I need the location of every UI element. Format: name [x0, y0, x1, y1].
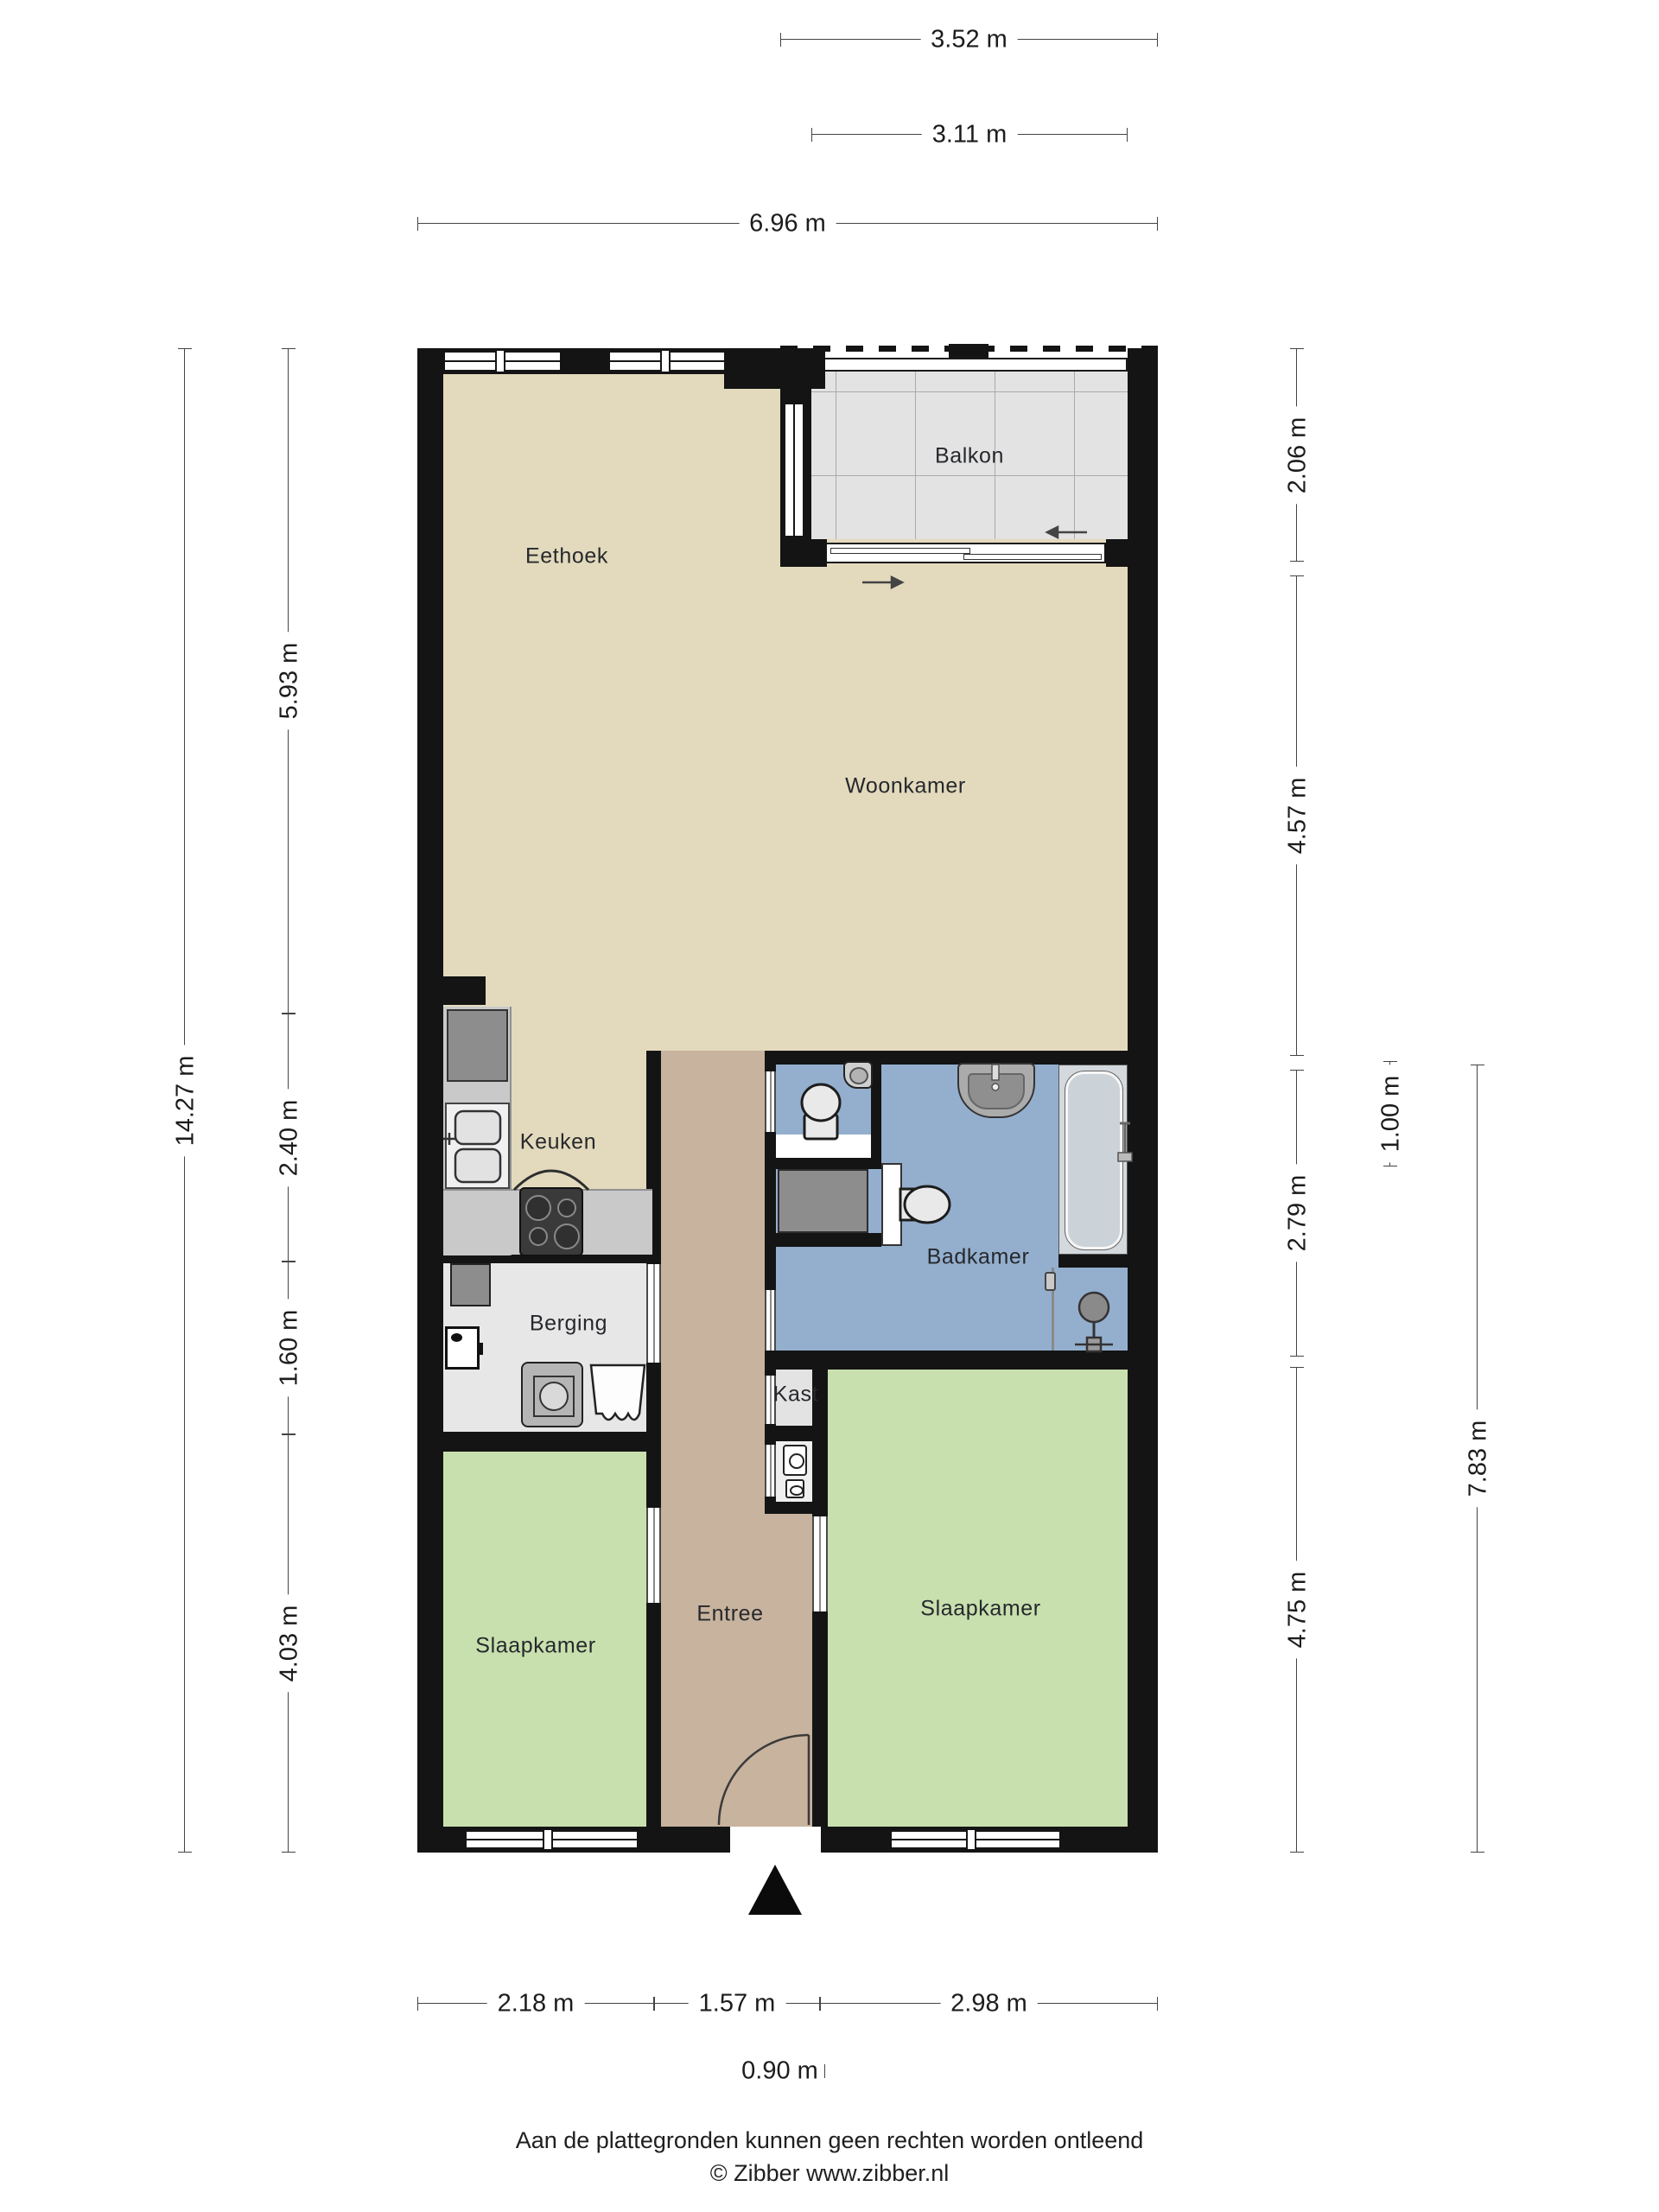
room-label-keuken: Keuken	[520, 1130, 596, 1155]
slide-arrow-left-icon	[1047, 527, 1087, 537]
kitchen-sink-icon	[455, 1111, 500, 1182]
bathtub-faucet-icon	[1120, 1123, 1130, 1153]
hood-icon	[514, 1171, 588, 1190]
toilet-icon	[802, 1084, 840, 1139]
washbasin-faucet-icon	[992, 1065, 999, 1090]
room-label-eethoek: Eethoek	[525, 544, 608, 569]
room-label-slaapkamer-rechts: Slaapkamer	[920, 1597, 1040, 1622]
bathtub-handle-icon	[1118, 1153, 1132, 1161]
room-label-berging: Berging	[530, 1312, 607, 1337]
laundry-basket-icon	[591, 1365, 645, 1420]
room-label-slaapkamer-links: Slaapkamer	[475, 1634, 595, 1659]
stove-burners-icon	[526, 1196, 579, 1249]
footer-disclaimer: Aan de plattegronden kunnen geen rechten…	[0, 2127, 1659, 2154]
room-label-woonkamer: Woonkamer	[845, 774, 966, 799]
entrance-arrow-icon	[748, 1865, 802, 1915]
room-label-badkamer: Badkamer	[927, 1245, 1030, 1270]
kitchen-faucet-icon	[443, 1133, 455, 1145]
front-door-icon	[719, 1735, 809, 1825]
room-label-balkon: Balkon	[935, 444, 1004, 469]
footer-credit: © Zibber www.zibber.nl	[0, 2160, 1659, 2187]
room-label-entree: Entree	[696, 1602, 763, 1627]
room-label-kast: Kast	[773, 1382, 818, 1408]
bathroom-toilet-icon	[900, 1186, 950, 1223]
detail-overlay	[0, 0, 1659, 2212]
floorplan-page: 3.52 m 3.11 m 6.96 m 14.27 m 5.93 m 2.40…	[0, 0, 1659, 2212]
shower-icon	[1075, 1293, 1113, 1351]
slide-arrow-right-icon	[862, 577, 902, 588]
